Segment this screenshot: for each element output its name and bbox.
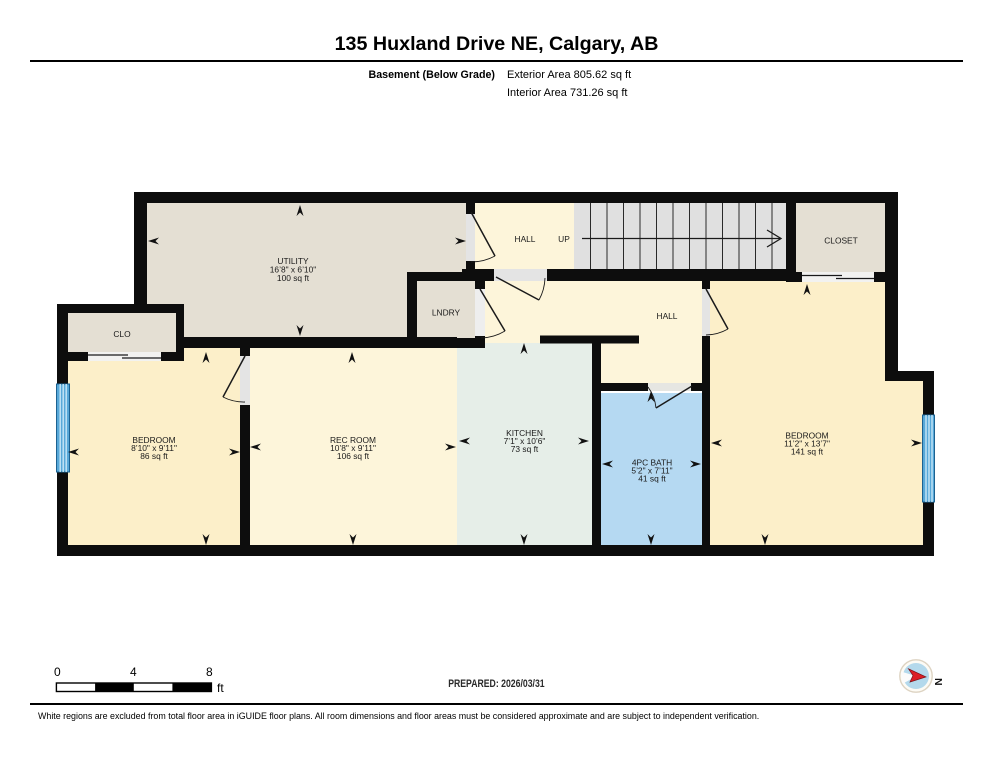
- svg-text:UP: UP: [558, 234, 570, 244]
- svg-text:100 sq ft: 100 sq ft: [277, 273, 310, 283]
- svg-text:CLO: CLO: [113, 329, 131, 339]
- svg-text:86 sq ft: 86 sq ft: [140, 451, 168, 461]
- svg-text:LNDRY: LNDRY: [432, 308, 461, 318]
- svg-text:73 sq ft: 73 sq ft: [511, 444, 539, 454]
- svg-text:0: 0: [54, 665, 61, 679]
- svg-text:141 sq ft: 141 sq ft: [791, 447, 824, 457]
- svg-text:HALL: HALL: [515, 234, 536, 244]
- svg-text:41 sq ft: 41 sq ft: [638, 474, 666, 484]
- svg-text:4: 4: [130, 665, 137, 679]
- svg-text:CLOSET: CLOSET: [824, 236, 858, 246]
- svg-text:8: 8: [206, 665, 213, 679]
- svg-text:N: N: [932, 678, 944, 686]
- svg-text:106 sq ft: 106 sq ft: [337, 451, 370, 461]
- svg-text:HALL: HALL: [657, 311, 678, 321]
